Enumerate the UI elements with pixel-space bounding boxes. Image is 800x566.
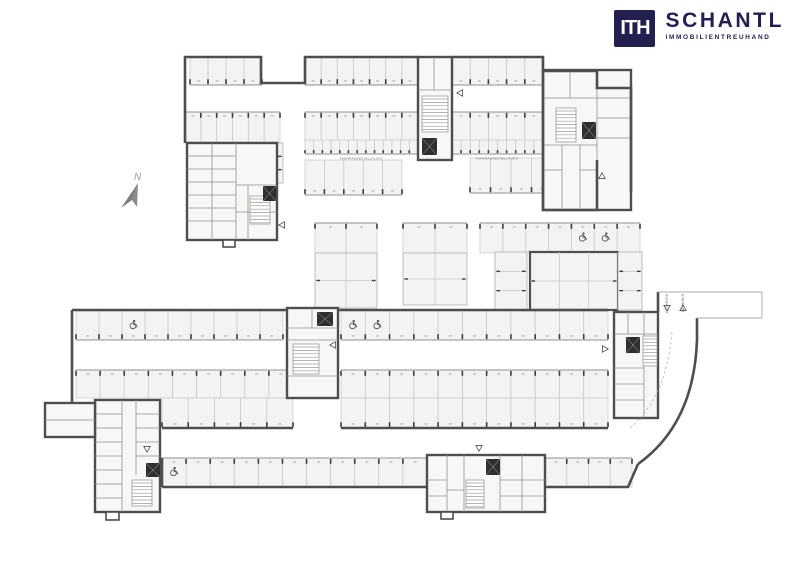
bicycle-parking-row xyxy=(451,140,544,154)
elevator-icon xyxy=(422,138,437,155)
stairs-icon xyxy=(293,344,319,374)
room-block-northeast xyxy=(543,70,631,210)
parking-row xyxy=(340,398,609,428)
logo-mark-icon: ITH xyxy=(614,10,655,47)
parking-row xyxy=(161,398,294,428)
plan-label-einfahrt: EINFAHRT xyxy=(681,294,685,313)
storage-grid xyxy=(403,253,467,305)
parking-row xyxy=(314,223,378,253)
parking-row xyxy=(189,57,263,85)
parking-row xyxy=(184,112,281,142)
elevator-icon xyxy=(626,337,640,353)
elevator-icon xyxy=(486,459,500,475)
stairs-icon xyxy=(132,480,152,506)
elevator-icon xyxy=(146,463,160,477)
left-arrow-icon xyxy=(457,90,463,96)
parking-row xyxy=(340,311,609,340)
company-logo: ITH SCHANTL IMMOBILIENTREUHAND xyxy=(614,10,784,47)
parking-row xyxy=(479,223,641,253)
elevator-icon xyxy=(263,186,276,201)
down-arrow-icon xyxy=(476,445,482,451)
right-arrow-icon xyxy=(602,346,608,352)
parking-row xyxy=(304,57,419,85)
annex-room-west xyxy=(45,403,95,437)
floorplan-page: FAHRRADABSTELLPLATZFAHRRADABSTELLPLATZAU… xyxy=(0,0,800,566)
stairs-icon xyxy=(422,96,448,132)
elevator-icon xyxy=(317,312,333,326)
north-arrow: N xyxy=(121,172,142,208)
stairs-icon xyxy=(556,108,576,142)
stairs-icon xyxy=(643,336,657,366)
parking-row xyxy=(304,160,403,195)
logo-mark-text: ITH xyxy=(620,17,649,40)
left-arrow-icon xyxy=(279,222,285,228)
parking-row xyxy=(451,112,544,142)
floor-plan-drawing: FAHRRADABSTELLPLATZFAHRRADABSTELLPLATZAU… xyxy=(0,0,800,566)
storage-cluster-northwest xyxy=(187,143,277,247)
parking-row xyxy=(304,112,419,142)
plan-label-ausfahrt: AUSFAHRT xyxy=(665,294,669,314)
plan-label-bike-left: FAHRRADABSTELLPLATZ xyxy=(340,157,383,161)
plan-label-bike-right: FAHRRADABSTELLPLATZ xyxy=(476,157,519,161)
storage-grid xyxy=(618,252,642,310)
logo-text: SCHANTL IMMOBILIENTREUHAND xyxy=(665,10,784,41)
storage-cluster-southwest xyxy=(95,400,160,520)
storage-cluster-south xyxy=(427,455,545,519)
logo-name: SCHANTL xyxy=(665,10,784,31)
parking-row xyxy=(451,57,544,85)
bicycle-parking-row xyxy=(304,140,419,154)
parking-row xyxy=(161,458,428,487)
elevator-icon xyxy=(582,122,596,139)
stair-core-center xyxy=(287,308,338,398)
stair-core-north xyxy=(418,57,452,160)
storage-grid xyxy=(315,253,377,308)
parking-row xyxy=(75,311,284,340)
parking-row xyxy=(544,458,633,487)
parking-row xyxy=(75,370,294,398)
storage-grid xyxy=(530,252,618,310)
parking-row xyxy=(340,370,609,398)
logo-tagline: IMMOBILIENTREUHAND xyxy=(665,34,784,41)
parking-row xyxy=(402,223,468,253)
storage-grid xyxy=(495,252,527,310)
stair-core-east xyxy=(614,312,658,418)
north-label: N xyxy=(134,172,142,183)
stairs-icon xyxy=(466,480,484,508)
